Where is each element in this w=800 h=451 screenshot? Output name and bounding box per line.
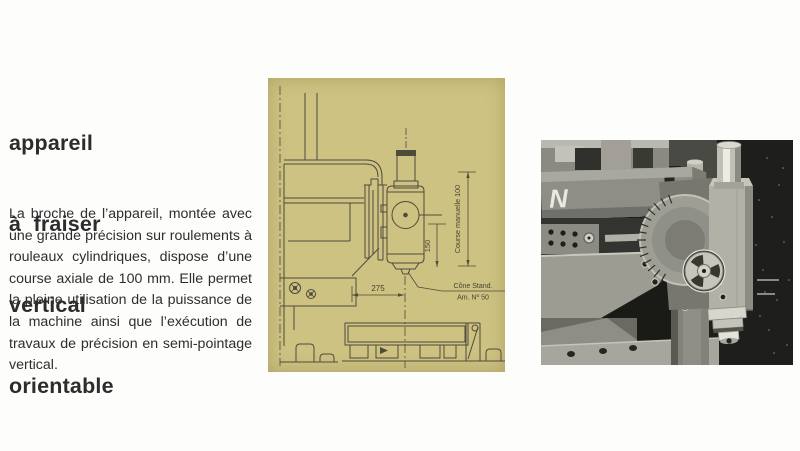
milling-head-outline bbox=[381, 150, 442, 274]
head-cylinder bbox=[714, 142, 744, 190]
dimension-label-150: 150 bbox=[423, 240, 432, 253]
clamp-bracket bbox=[364, 179, 387, 260]
cone-label-line1: Cône Stand. bbox=[454, 283, 493, 290]
dimension-label-course: Course manuelle 100 bbox=[453, 185, 462, 253]
milling-head-block bbox=[709, 178, 753, 310]
handwheel bbox=[683, 250, 725, 292]
dimension-course: Course manuelle 100 bbox=[453, 172, 476, 266]
cone-label-line2: Am. Nº 50 bbox=[457, 295, 489, 302]
dimension-275: 275 bbox=[352, 284, 404, 302]
photo-brand-letter: N bbox=[549, 183, 570, 214]
machine-photo: N bbox=[541, 140, 793, 365]
machine-column-outline bbox=[280, 93, 382, 362]
machine-table-outline bbox=[342, 323, 505, 361]
technical-drawing: 275 150 Course manuelle 100 Cône Stand. … bbox=[268, 78, 505, 372]
screw-symbols bbox=[290, 283, 316, 299]
machine-photo-art: N bbox=[541, 140, 793, 365]
brochure-page: appareil à fraiser vertical orientable L… bbox=[0, 0, 800, 451]
dimension-150: 150 bbox=[423, 224, 446, 267]
cone-label: Cône Stand. Am. Nº 50 bbox=[408, 272, 505, 302]
heading-line: orientable bbox=[9, 373, 114, 400]
article-body: La broche de l’appareil, montée avec une… bbox=[9, 204, 252, 377]
heading-line: appareil bbox=[9, 130, 114, 157]
dimension-label-275: 275 bbox=[371, 284, 385, 293]
technical-drawing-panel: 275 150 Course manuelle 100 Cône Stand. … bbox=[268, 78, 505, 372]
